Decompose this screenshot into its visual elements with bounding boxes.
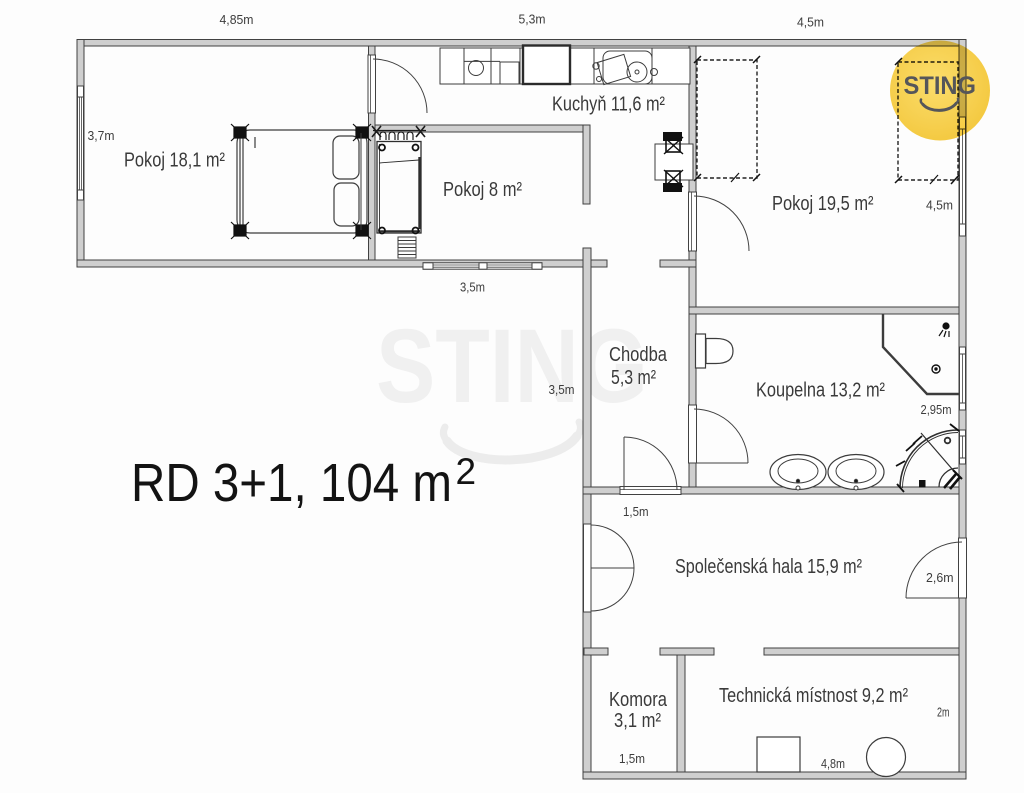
svg-text:Pokoj 8 m²: Pokoj 8 m² [443,179,522,201]
svg-text:2,6m: 2,6m [926,570,954,585]
svg-text:2m: 2m [937,705,950,720]
svg-text:RD 3+1, 104 m: RD 3+1, 104 m [131,453,452,513]
svg-text:Koupelna 13,2 m²: Koupelna 13,2 m² [756,380,885,402]
svg-text:Kuchyň 11,6 m²: Kuchyň 11,6 m² [552,94,665,116]
svg-text:STING: STING [376,308,648,425]
svg-text:3,7m: 3,7m [88,128,115,143]
svg-text:Společenská hala 15,9 m²: Společenská hala 15,9 m² [675,556,862,578]
svg-text:4,5m: 4,5m [926,198,953,213]
svg-text:Komora: Komora [609,689,668,711]
svg-text:3,1 m²: 3,1 m² [614,710,661,732]
svg-text:1,5m: 1,5m [619,751,645,766]
svg-text:2,95m: 2,95m [921,402,952,417]
svg-text:STING: STING [904,72,977,100]
svg-text:3,5m: 3,5m [549,382,575,397]
svg-text:3,5m: 3,5m [460,280,485,295]
svg-text:5,3 m²: 5,3 m² [611,367,656,389]
svg-text:4,5m: 4,5m [797,15,824,30]
svg-text:1,5m: 1,5m [623,504,649,519]
svg-text:Technická místnost 9,2 m²: Technická místnost 9,2 m² [719,685,908,707]
svg-text:2: 2 [456,451,477,492]
svg-text:5,3m: 5,3m [519,12,546,27]
svg-text:4,85m: 4,85m [220,12,254,27]
svg-text:Pokoj 19,5 m²: Pokoj 19,5 m² [772,193,874,215]
svg-text:Pokoj 18,1 m²: Pokoj 18,1 m² [124,150,225,172]
svg-text:4,8m: 4,8m [821,756,845,771]
svg-text:Chodba: Chodba [609,344,668,366]
